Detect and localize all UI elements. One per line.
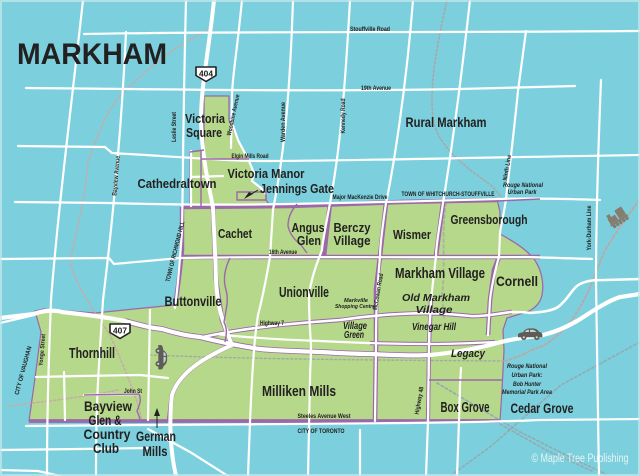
svg-text:CITY OF TORONTO: CITY OF TORONTO bbox=[298, 428, 345, 435]
svg-text:Stouffville Road: Stouffville Road bbox=[350, 26, 390, 33]
svg-text:Box Grove: Box Grove bbox=[441, 400, 490, 416]
svg-text:Cathedraltown: Cathedraltown bbox=[138, 176, 217, 191]
svg-text:© Maple Tree Publishing: © Maple Tree Publishing bbox=[532, 453, 629, 465]
svg-text:Steeles Avenue West: Steeles Avenue West bbox=[298, 413, 351, 420]
svg-text:Warden Avenue: Warden Avenue bbox=[280, 102, 287, 142]
svg-text:Victoria Manor: Victoria Manor bbox=[228, 166, 305, 181]
svg-text:TOWN OF WHITCHURCH-STOUFFVILLE: TOWN OF WHITCHURCH-STOUFFVILLE bbox=[402, 191, 495, 198]
svg-text:Thornhill: Thornhill bbox=[69, 345, 115, 362]
svg-text:Elgin Mills Road: Elgin Mills Road bbox=[232, 153, 269, 160]
svg-text:Buttonville: Buttonville bbox=[165, 293, 222, 309]
svg-text:VictoriaSquare: VictoriaSquare bbox=[185, 111, 226, 140]
svg-text:York-Durham Line: York-Durham Line bbox=[586, 205, 593, 250]
svg-text:Rural Markham: Rural Markham bbox=[406, 114, 487, 130]
svg-text:Vinegar Hill: Vinegar Hill bbox=[412, 321, 457, 333]
svg-text:Greensborough: Greensborough bbox=[451, 212, 528, 227]
svg-text:Cornell: Cornell bbox=[496, 273, 538, 289]
svg-text:Cedar Grove: Cedar Grove bbox=[511, 400, 574, 416]
svg-text:BerczyVillage: BerczyVillage bbox=[334, 220, 372, 248]
svg-text:John St: John St bbox=[124, 388, 142, 395]
svg-text:Leslie Street: Leslie Street bbox=[171, 112, 178, 142]
svg-text:Kennedy Road: Kennedy Road bbox=[340, 98, 347, 133]
svg-text:Markham Village: Markham Village bbox=[395, 266, 485, 282]
svg-text:MARKHAM: MARKHAM bbox=[17, 38, 167, 71]
svg-text:404: 404 bbox=[199, 70, 213, 79]
svg-text:Milliken Mills: Milliken Mills bbox=[262, 383, 336, 400]
svg-text:16th Avenue: 16th Avenue bbox=[269, 249, 297, 256]
svg-text:Major MacKenzie Drive: Major MacKenzie Drive bbox=[333, 194, 388, 201]
svg-text:Jennings Gate: Jennings Gate bbox=[260, 181, 334, 196]
svg-text:Highway 7: Highway 7 bbox=[260, 320, 284, 327]
svg-text:VillageGreen: VillageGreen bbox=[343, 320, 367, 341]
svg-text:Unionville: Unionville bbox=[279, 284, 329, 301]
svg-text:Legacy: Legacy bbox=[451, 348, 486, 360]
svg-text:Wismer: Wismer bbox=[393, 227, 431, 242]
svg-text:AngusGlen: AngusGlen bbox=[292, 220, 325, 248]
svg-text:Cachet: Cachet bbox=[218, 226, 253, 241]
svg-text:19th Avenue: 19th Avenue bbox=[361, 85, 391, 92]
svg-text:407: 407 bbox=[113, 327, 127, 336]
